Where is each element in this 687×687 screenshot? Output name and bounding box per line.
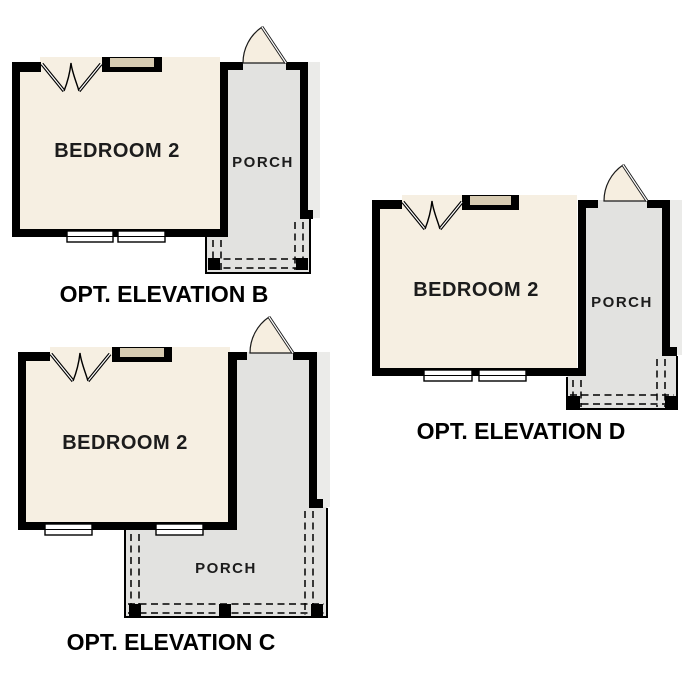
wall (18, 352, 26, 530)
window-icon (156, 524, 203, 535)
wall-step (309, 499, 323, 508)
wall (12, 62, 41, 72)
room-label: BEDROOM 2 (54, 140, 180, 162)
door-swing-icon (243, 27, 286, 63)
wall (18, 352, 50, 361)
porch-post-icon (311, 604, 323, 616)
porch-post-icon (129, 604, 141, 616)
porch-floor (228, 352, 317, 530)
porch-post-icon (219, 604, 231, 616)
floor-plan-sheet: BEDROOM 2 PORCH OPT. ELEVATION B (0, 0, 687, 687)
wall (309, 352, 317, 507)
window-icon (118, 231, 165, 242)
wall (220, 62, 228, 233)
window-header-fill (120, 348, 164, 357)
porch-label: PORCH (195, 560, 257, 577)
plan-caption: OPT. ELEVATION B (60, 281, 269, 307)
wall (228, 352, 237, 530)
porch-post-icon (296, 258, 308, 270)
porch-label: PORCH (591, 294, 653, 311)
window-icon (424, 370, 472, 381)
porch-post-icon (208, 258, 220, 270)
house-edge-strip (308, 62, 320, 218)
wall (578, 200, 598, 208)
wall (662, 200, 670, 355)
plan-caption: OPT. ELEVATION D (417, 418, 626, 444)
window-icon (67, 231, 113, 242)
window-header-fill (110, 58, 154, 67)
wall (372, 200, 380, 376)
wall (300, 62, 308, 218)
plan-elevation-b: BEDROOM 2 PORCH OPT. ELEVATION B (12, 27, 320, 307)
house-edge-strip (317, 352, 330, 507)
plan-elevation-d: BEDROOM 2 PORCH OPT. ELEVATION D (372, 165, 682, 444)
porch-floor (220, 62, 308, 233)
porch-label: PORCH (232, 154, 294, 171)
wall (578, 200, 586, 376)
wall-step (662, 347, 677, 356)
door-swing-icon (250, 317, 293, 353)
plan-elevation-c: BEDROOM 2 PORCH OPT. ELEVATION C (18, 317, 330, 655)
door-swing-icon (604, 165, 647, 201)
room-label: BEDROOM 2 (413, 279, 539, 301)
porch-post-icon (568, 396, 580, 408)
wall (220, 62, 243, 70)
window-icon (45, 524, 92, 535)
window-header-fill (470, 196, 511, 205)
window-icon (479, 370, 526, 381)
porch-post-icon (665, 396, 677, 408)
wall (372, 200, 402, 209)
wall (228, 352, 247, 360)
floor-plan-canvas: BEDROOM 2 PORCH OPT. ELEVATION B (0, 0, 687, 687)
plan-caption: OPT. ELEVATION C (67, 629, 276, 655)
room-label: BEDROOM 2 (62, 432, 188, 454)
wall (12, 62, 20, 237)
house-edge-strip (670, 200, 682, 355)
wall-step (300, 210, 313, 219)
porch-floor (578, 200, 670, 376)
